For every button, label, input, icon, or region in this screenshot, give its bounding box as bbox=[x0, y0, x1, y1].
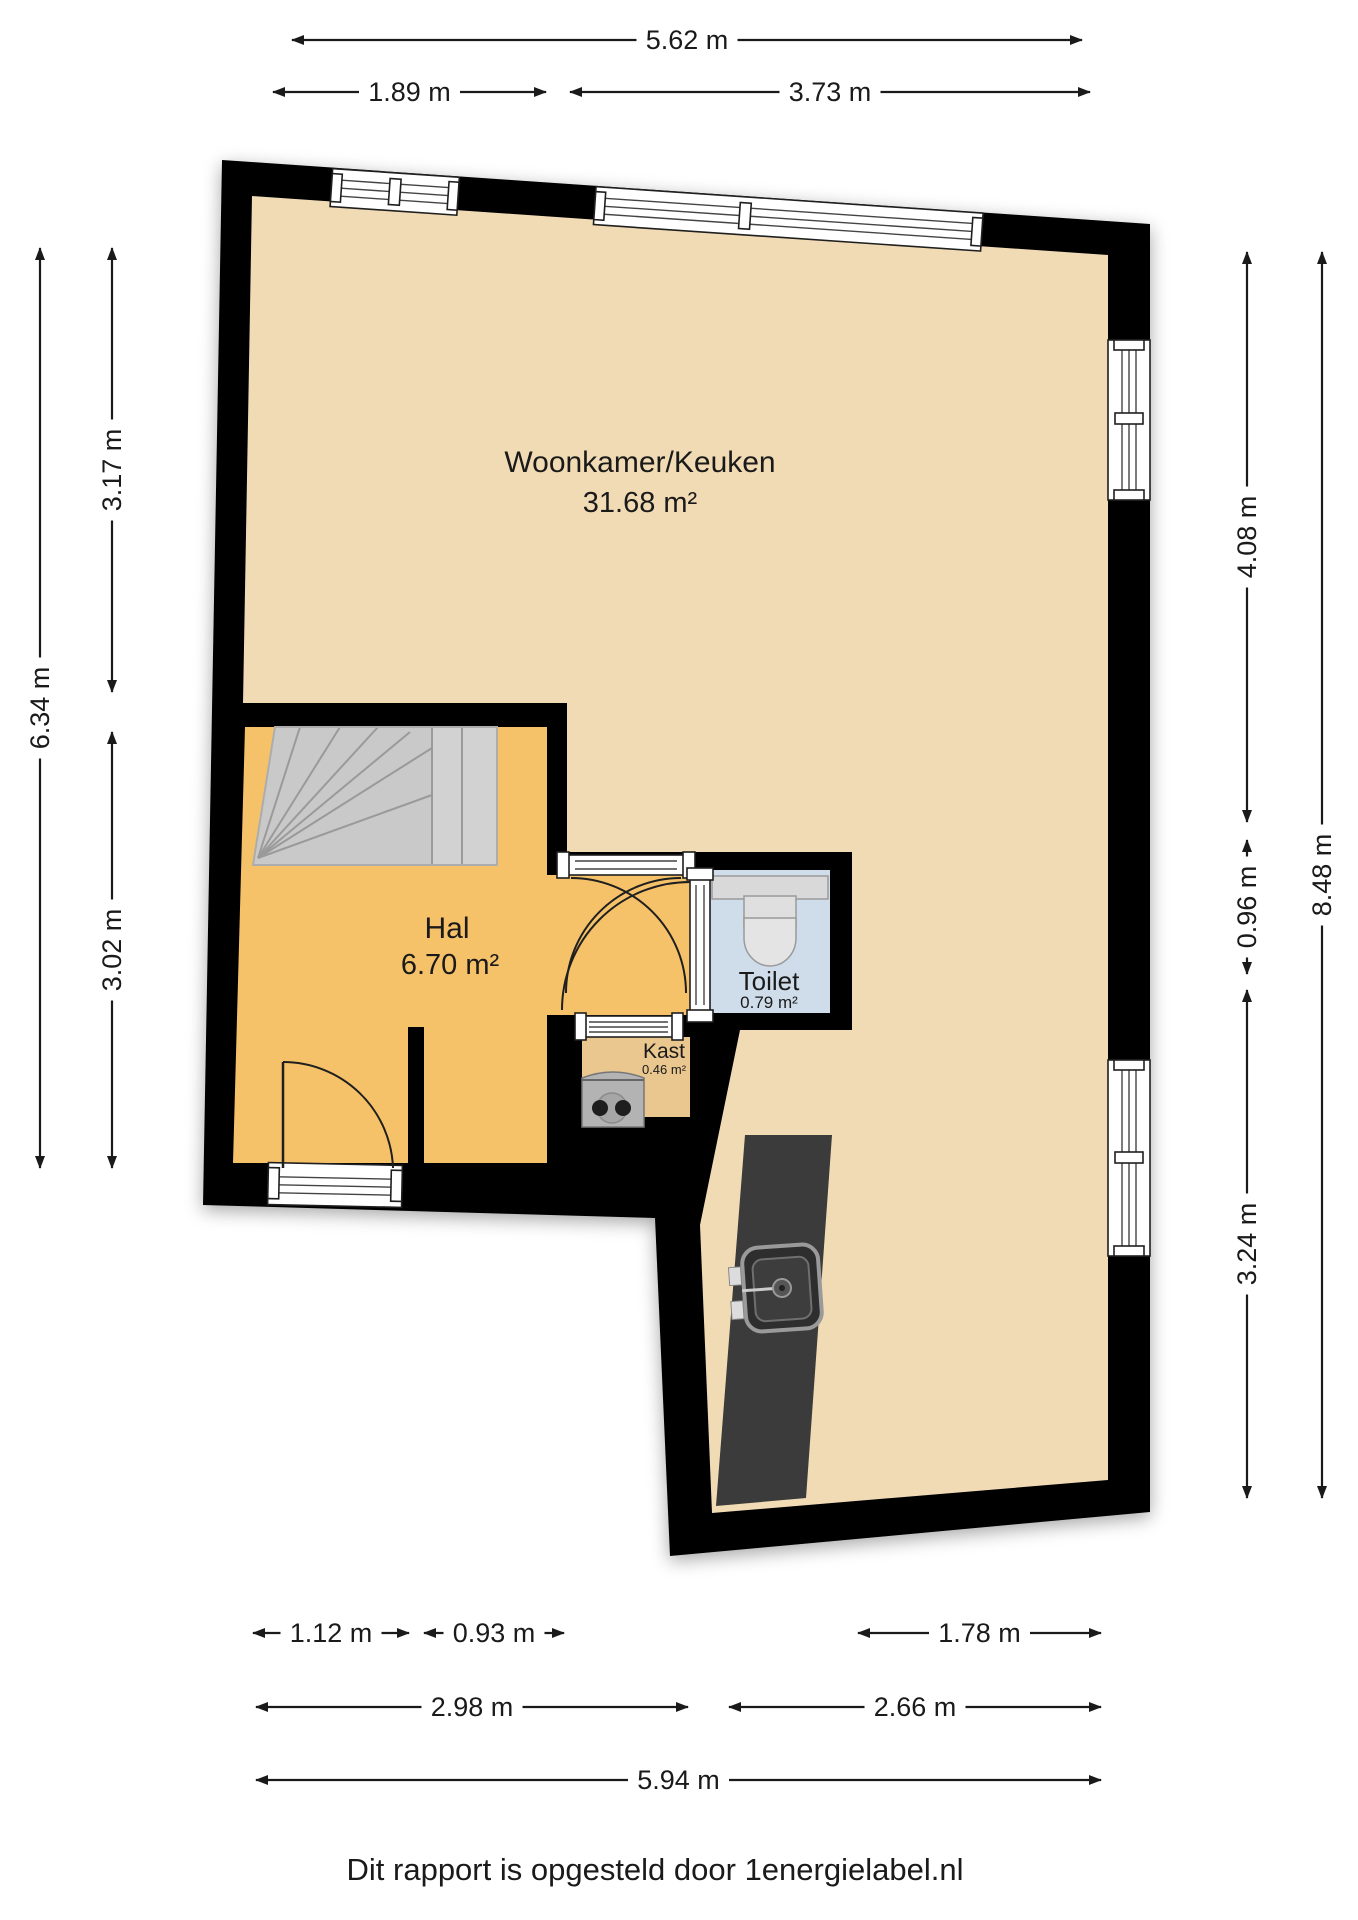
window bbox=[330, 169, 459, 216]
dimension-label: 1.78 m bbox=[938, 1618, 1021, 1648]
boiler-icon bbox=[582, 1072, 644, 1127]
front-door bbox=[268, 1163, 403, 1208]
dimension-1-89-m: 1.89 m bbox=[273, 75, 546, 109]
building bbox=[203, 160, 1150, 1556]
dimension-label: 4.08 m bbox=[1232, 496, 1262, 579]
room-label-kast: Kast bbox=[643, 1040, 685, 1063]
dimension-2-98-m: 2.98 m bbox=[256, 1690, 688, 1724]
floorplan-page: Woonkamer/Keuken 31.68 m² Hal 6.70 m² To… bbox=[0, 0, 1358, 1920]
dimension-label: 5.62 m bbox=[646, 25, 729, 55]
room-area-kast: 0.46 m² bbox=[642, 1062, 687, 1077]
dimension-label: 3.24 m bbox=[1232, 1203, 1262, 1286]
dimension-label: 0.93 m bbox=[453, 1618, 536, 1648]
livingroom-door bbox=[557, 852, 695, 878]
toilet-door bbox=[687, 868, 713, 1022]
wall-stub-hall bbox=[408, 1027, 424, 1167]
room-area-woonkamer: 31.68 m² bbox=[583, 487, 698, 519]
dimension-0-96-m: 0.96 m bbox=[1230, 840, 1264, 974]
dimension-5-62-m: 5.62 m bbox=[292, 23, 1082, 57]
dimension-label: 1.12 m bbox=[290, 1618, 373, 1648]
footer-credit: Dit rapport is opgesteld door 1energiela… bbox=[347, 1852, 964, 1887]
floorplan-svg: Woonkamer/Keuken 31.68 m² Hal 6.70 m² To… bbox=[0, 0, 1358, 1920]
dimension-label: 2.98 m bbox=[431, 1692, 514, 1722]
dimension-3-17-m: 3.17 m bbox=[95, 248, 129, 692]
dimension-label: 3.17 m bbox=[97, 429, 127, 512]
room-area-toilet: 0.79 m² bbox=[740, 993, 798, 1012]
window bbox=[1108, 340, 1150, 500]
dimension-0-93-m: 0.93 m bbox=[424, 1616, 564, 1650]
dimension-6-34-m: 6.34 m bbox=[23, 248, 57, 1168]
dimension-3-02-m: 3.02 m bbox=[95, 732, 129, 1168]
dimension-label: 3.02 m bbox=[97, 909, 127, 992]
dimension-label: 2.66 m bbox=[874, 1692, 957, 1722]
dimension-3-24-m: 3.24 m bbox=[1230, 990, 1264, 1498]
dimension-8-48-m: 8.48 m bbox=[1305, 252, 1339, 1498]
dimension-label: 0.96 m bbox=[1232, 866, 1262, 949]
kast-door bbox=[575, 1013, 683, 1040]
room-label-woonkamer: Woonkamer/Keuken bbox=[504, 446, 775, 479]
stairs bbox=[253, 727, 497, 865]
room-label-hal: Hal bbox=[424, 912, 469, 945]
dimension-1-12-m: 1.12 m bbox=[253, 1616, 409, 1650]
window bbox=[1108, 1060, 1150, 1256]
dimension-5-94-m: 5.94 m bbox=[256, 1763, 1101, 1797]
dimension-4-08-m: 4.08 m bbox=[1230, 252, 1264, 822]
dimension-label: 1.89 m bbox=[368, 77, 451, 107]
dimension-1-78-m: 1.78 m bbox=[858, 1616, 1101, 1650]
dimension-label: 8.48 m bbox=[1307, 834, 1337, 917]
room-label-toilet: Toilet bbox=[739, 966, 800, 996]
dimension-label: 3.73 m bbox=[789, 77, 872, 107]
room-area-hal: 6.70 m² bbox=[401, 949, 500, 981]
dimension-label: 6.34 m bbox=[25, 667, 55, 750]
dimension-label: 5.94 m bbox=[637, 1765, 720, 1795]
dimension-3-73-m: 3.73 m bbox=[570, 75, 1090, 109]
dimension-2-66-m: 2.66 m bbox=[729, 1690, 1101, 1724]
